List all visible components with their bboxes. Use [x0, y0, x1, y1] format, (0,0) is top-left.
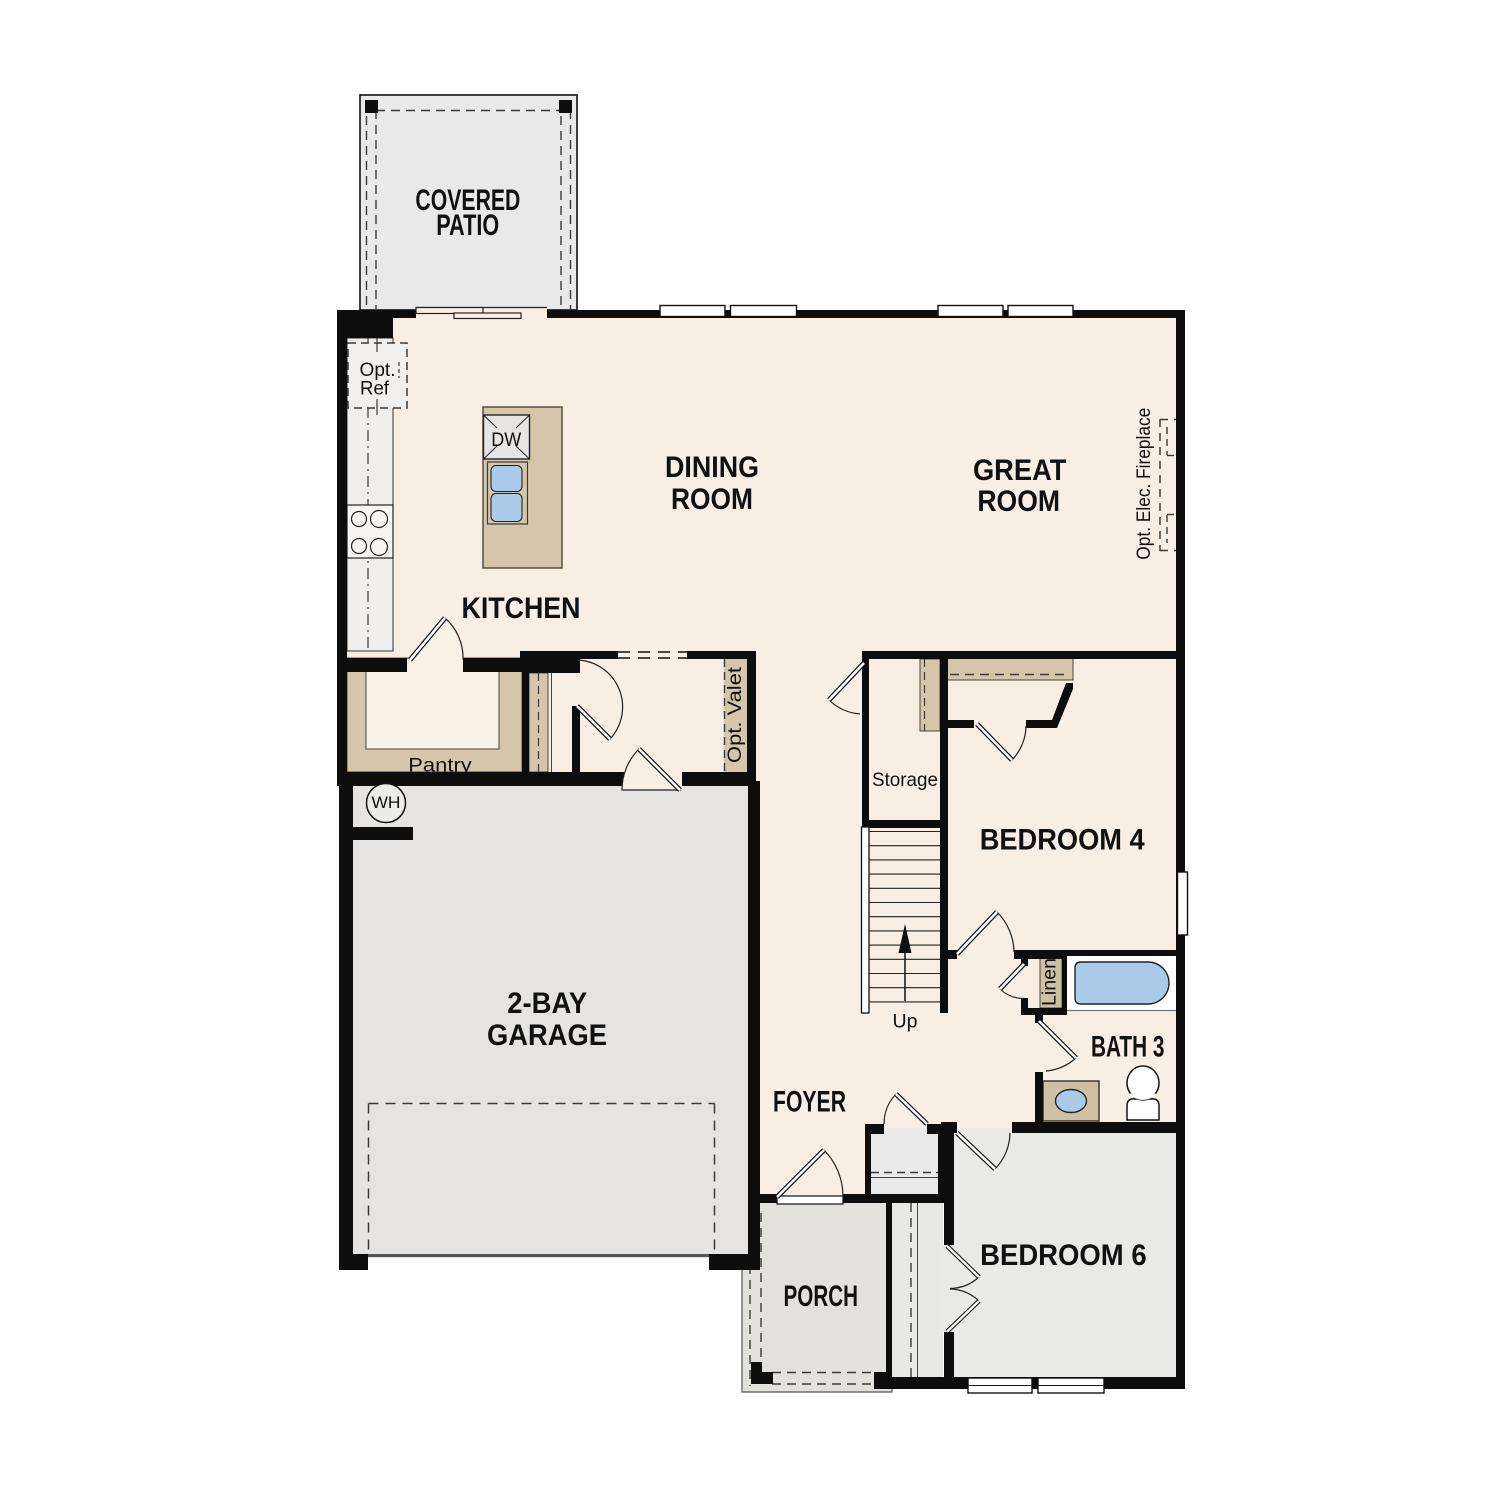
svg-text:Pantry: Pantry: [408, 755, 472, 777]
svg-text:Opt. Valet: Opt. Valet: [724, 666, 746, 763]
svg-text:Opt. Elec. Fireplace: Opt. Elec. Fireplace: [1133, 408, 1155, 560]
svg-text:GARAGE: GARAGE: [487, 1019, 607, 1052]
svg-text:DINING: DINING: [665, 451, 759, 484]
svg-text:ROOM: ROOM: [671, 483, 753, 516]
svg-text:Linen: Linen: [1039, 958, 1061, 1006]
svg-text:BEDROOM 6: BEDROOM 6: [980, 1239, 1147, 1272]
svg-text:Ref: Ref: [360, 378, 390, 400]
svg-text:DW: DW: [491, 429, 522, 451]
svg-text:BATH 3: BATH 3: [1091, 1031, 1165, 1064]
svg-text:ROOM: ROOM: [977, 485, 1060, 518]
svg-text:GREAT: GREAT: [973, 454, 1067, 487]
svg-text:WH: WH: [372, 793, 401, 812]
svg-text:PORCH: PORCH: [784, 1280, 859, 1313]
svg-text:Storage: Storage: [872, 769, 938, 791]
svg-text:2-BAY: 2-BAY: [507, 987, 587, 1020]
svg-text:KITCHEN: KITCHEN: [462, 592, 581, 625]
svg-text:Up: Up: [893, 1011, 918, 1033]
svg-text:BEDROOM 4: BEDROOM 4: [980, 823, 1145, 856]
svg-text:PATIO: PATIO: [436, 209, 499, 242]
svg-text:FOYER: FOYER: [773, 1085, 846, 1118]
